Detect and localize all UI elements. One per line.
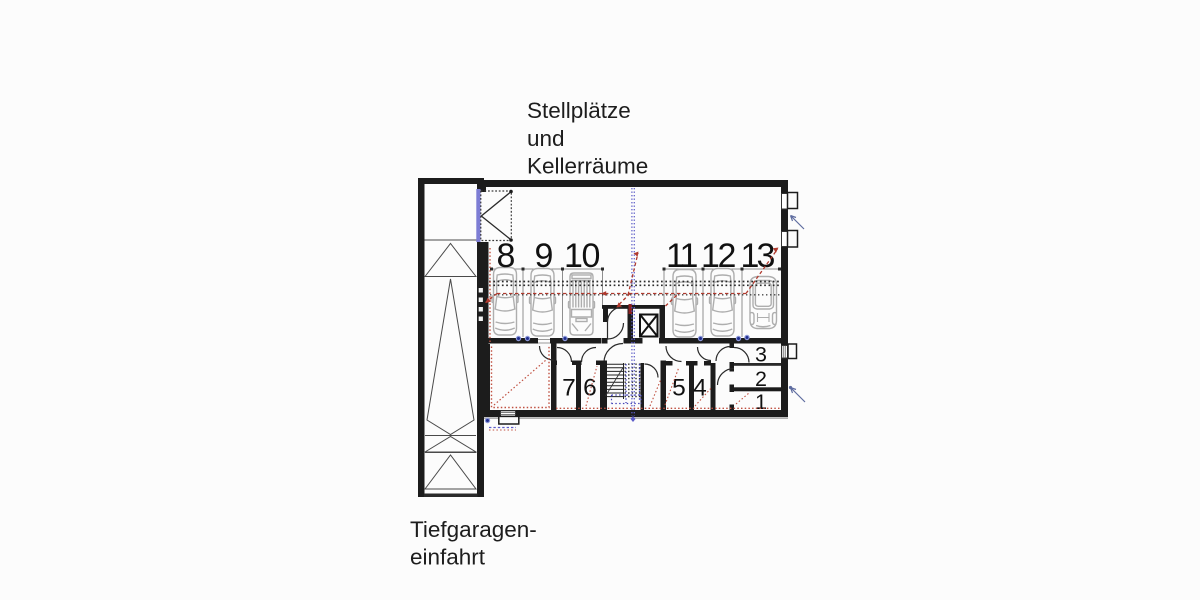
svg-text:2: 2 [718, 237, 737, 275]
svg-text:und: und [527, 126, 565, 151]
svg-text:6: 6 [583, 375, 597, 402]
svg-text:7: 7 [562, 375, 576, 402]
svg-text:einfahrt: einfahrt [410, 545, 486, 570]
svg-text:4: 4 [693, 375, 707, 402]
svg-text:0: 0 [582, 237, 601, 275]
svg-text:Kellerräume: Kellerräume [527, 154, 648, 179]
svg-text:8: 8 [497, 237, 516, 275]
svg-text:1: 1 [755, 390, 767, 414]
svg-text:Tiefgaragen-: Tiefgaragen- [410, 517, 537, 542]
svg-text:9: 9 [535, 237, 554, 275]
svg-text:5: 5 [672, 375, 686, 402]
svg-text:1: 1 [564, 237, 583, 275]
svg-text:3: 3 [755, 343, 767, 367]
svg-text:3: 3 [757, 237, 776, 275]
svg-text:1: 1 [680, 237, 699, 275]
svg-text:2: 2 [755, 367, 767, 391]
svg-text:Stellplätze: Stellplätze [527, 98, 631, 123]
